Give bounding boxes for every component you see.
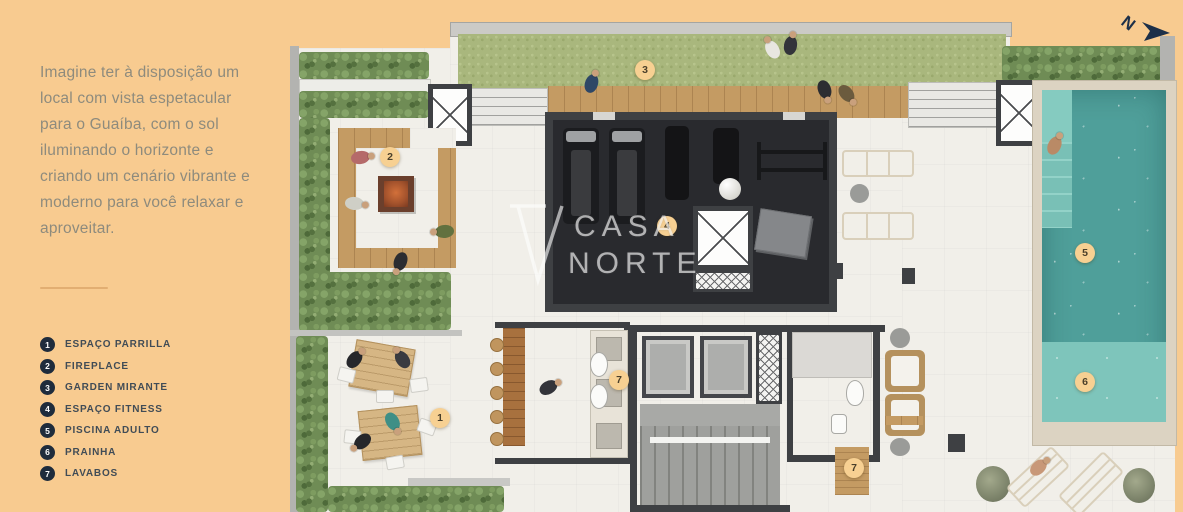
legend-number-badge: 7 [40, 466, 55, 481]
legend: 1 ESPAÇO PARRILLA 2 FIREPLACE 3 GARDEN M… [40, 337, 171, 481]
hedge-row [299, 52, 429, 79]
armchair [885, 394, 925, 436]
legend-label: ESPAÇO PARRILLA [65, 339, 171, 350]
legend-item-piscina-adulto: 5 PISCINA ADULTO [40, 423, 171, 438]
legend-number-badge: 5 [40, 423, 55, 438]
stair-landing [640, 404, 780, 426]
watermark-line1: CASA [574, 210, 680, 244]
armchair [885, 350, 925, 392]
hedge-row [1002, 46, 1168, 82]
legend-label: LAVABOS [65, 468, 118, 479]
hedge-row [328, 486, 504, 512]
floor-plan-page: Imagine ter à disposição um local com vi… [0, 0, 1183, 512]
side-table [850, 184, 869, 203]
legend-item-espaco-parrilla: 1 ESPAÇO PARRILLA [40, 337, 171, 352]
weight-rack [757, 142, 827, 180]
hedge-row [299, 272, 451, 330]
exercise-ball [719, 178, 741, 200]
planter-cube [948, 434, 965, 452]
legend-item-espaco-fitness: 4 ESPAÇO FITNESS [40, 402, 171, 417]
exercise-bike [713, 128, 739, 184]
bar-counter [503, 328, 525, 446]
hedge-row [299, 91, 429, 118]
plan-marker-3: 3 [635, 60, 655, 80]
intro-paragraph: Imagine ter à disposição um local com vi… [40, 60, 264, 242]
bar-stool [490, 386, 504, 400]
washbasin [590, 352, 608, 377]
divider-line [40, 287, 108, 289]
legend-item-fireplace: 2 FIREPLACE [40, 359, 171, 374]
casa-norte-logo-icon [508, 200, 568, 286]
floor-plan: 1 2 3 4 5 6 7 7 CASA NORTE N [290, 0, 1183, 512]
bench-opening [410, 128, 456, 148]
wall [495, 458, 630, 464]
gym-mats [754, 208, 812, 258]
watermark-line2: NORTE [568, 247, 702, 281]
fireplace [378, 176, 414, 212]
legend-number-badge: 2 [40, 359, 55, 374]
bar-stool [490, 432, 504, 446]
compass-letter: N [1118, 12, 1139, 35]
legend-label: FIREPLACE [65, 361, 129, 372]
legend-item-lavabos: 7 LAVABOS [40, 466, 171, 481]
bench-steps-left [470, 88, 548, 126]
plan-marker-7b: 7 [844, 458, 864, 478]
chair [409, 377, 429, 393]
legend-label: ESPAÇO FITNESS [65, 404, 163, 415]
plan-marker-6: 6 [1075, 372, 1095, 392]
legend-number-badge: 3 [40, 380, 55, 395]
planter-cube [830, 263, 843, 279]
plan-marker-2: 2 [380, 147, 400, 167]
elevator-cab [642, 336, 694, 398]
bar-stool [490, 410, 504, 424]
door-gap [783, 112, 805, 120]
legend-number-badge: 1 [40, 337, 55, 352]
wall [630, 325, 885, 332]
elliptical [665, 126, 689, 200]
bench-steps-right [908, 82, 998, 128]
lavabo-anteroom [792, 332, 872, 378]
washbasin [831, 414, 847, 434]
cushion [891, 400, 919, 430]
bar-stool [490, 362, 504, 376]
legend-label: PISCINA ADULTO [65, 425, 160, 436]
washbasin [590, 384, 608, 409]
terrace-edge [408, 478, 510, 486]
prainha-shallow [1042, 342, 1166, 422]
shrub [976, 466, 1010, 502]
side-bench [885, 416, 923, 425]
plan-marker-1: 1 [430, 408, 450, 428]
shrub [1123, 468, 1155, 503]
plan-marker-5: 5 [1075, 243, 1095, 263]
planter [890, 328, 910, 348]
legend-label: GARDEN MIRANTE [65, 382, 168, 393]
toilet [846, 380, 864, 406]
legend-item-prainha: 6 PRAINHA [40, 445, 171, 460]
pool-steps [1042, 142, 1072, 228]
planter-cube [902, 268, 915, 284]
sun-lounger [842, 212, 914, 240]
bar-stool [490, 338, 504, 352]
elevator-cab [700, 336, 752, 398]
planter [890, 438, 910, 456]
legend-item-garden-mirante: 3 GARDEN MIRANTE [40, 380, 171, 395]
sun-lounger [842, 150, 914, 177]
wall [873, 325, 880, 462]
chair [376, 390, 394, 403]
legend-number-badge: 4 [40, 402, 55, 417]
plan-marker-7a: 7 [609, 370, 629, 390]
door-gap [593, 112, 615, 120]
legend-label: PRAINHA [65, 447, 116, 458]
legend-number-badge: 6 [40, 445, 55, 460]
hedge-column [296, 336, 328, 512]
wall [630, 505, 790, 512]
stair-handrail [650, 437, 770, 443]
appliance [596, 423, 622, 449]
cushion [891, 356, 919, 386]
north-compass-icon: N [1118, 10, 1174, 44]
shaft-hatch [756, 332, 782, 404]
wall [630, 325, 637, 512]
